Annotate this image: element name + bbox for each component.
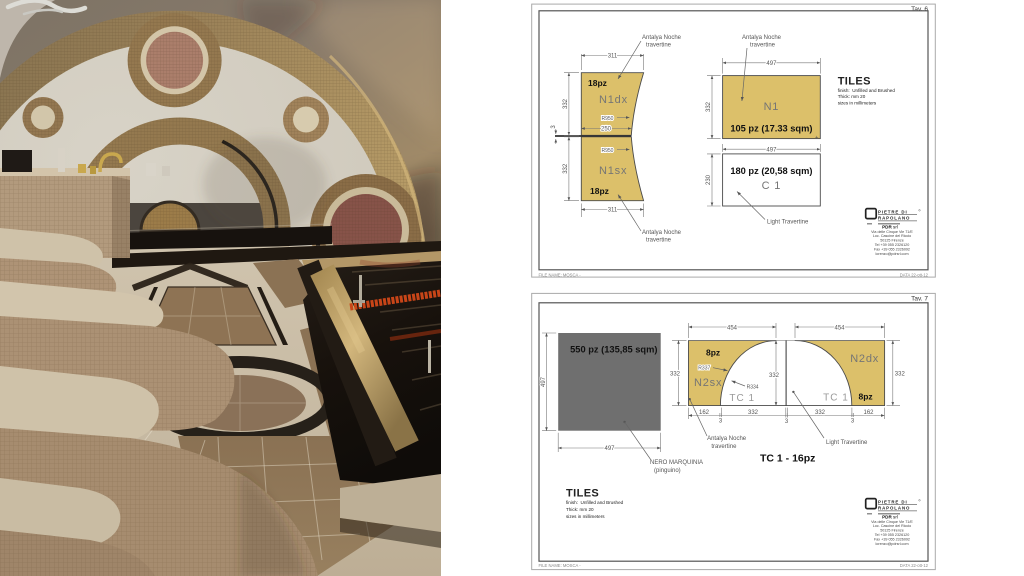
svg-text:N1: N1 (764, 101, 780, 113)
svg-text:travertine: travertine (750, 43, 776, 49)
svg-text:travertine: travertine (646, 238, 672, 244)
svg-text:finish: Unfilled and Brushed: finish: Unfilled and Brushed (566, 500, 624, 505)
svg-text:Via delle Cinque Vie 71/E: Via delle Cinque Vie 71/E (871, 230, 913, 234)
svg-text:travertine: travertine (711, 444, 737, 450)
svg-text:332: 332 (563, 98, 569, 109)
svg-text:N2sx: N2sx (694, 377, 722, 389)
svg-text:N1sx: N1sx (599, 165, 627, 177)
svg-text:332: 332 (563, 163, 569, 174)
svg-text:travertine: travertine (646, 43, 672, 49)
svg-text:TILES: TILES (838, 76, 871, 88)
svg-text:Antalya Noche: Antalya Noche (642, 35, 682, 41)
svg-text:R950: R950 (602, 148, 614, 154)
svg-text:FILE NAME: MOSCA -: FILE NAME: MOSCA - (539, 563, 582, 568)
svg-text:332: 332 (815, 410, 826, 416)
svg-text:18pz: 18pz (588, 78, 607, 88)
svg-text:Tav. 6: Tav. 6 (911, 6, 928, 13)
svg-text:Via delle Cinque Vie 71/E: Via delle Cinque Vie 71/E (871, 520, 913, 524)
svg-text:lorenzo@pdrsrl.com: lorenzo@pdrsrl.com (875, 252, 908, 256)
svg-text:8pz: 8pz (859, 392, 873, 402)
svg-text:162: 162 (699, 410, 710, 416)
svg-text:497: 497 (604, 446, 615, 452)
svg-text:332: 332 (670, 372, 681, 378)
svg-text:Thick: mm 20: Thick: mm 20 (838, 94, 866, 99)
svg-text:RAPOLANO: RAPOLANO (878, 216, 910, 221)
svg-text:50125 Firenze: 50125 Firenze (880, 529, 904, 533)
svg-text:TC 1 - 16pz: TC 1 - 16pz (760, 453, 815, 465)
svg-text:PDR srl: PDR srl (882, 224, 898, 229)
svg-text:18pz: 18pz (590, 186, 609, 196)
svg-text:Fax +39 055 2326092: Fax +39 055 2326092 (874, 537, 910, 541)
svg-text:332: 332 (769, 373, 780, 379)
svg-text:DATA 22-ott-12: DATA 22-ott-12 (900, 273, 929, 278)
svg-text:Tav. 7: Tav. 7 (911, 296, 928, 303)
svg-text:8pz: 8pz (706, 348, 720, 358)
svg-text:Antalya Noche: Antalya Noche (707, 436, 747, 442)
svg-text:N2dx: N2dx (850, 353, 879, 365)
svg-text:R337: R337 (698, 366, 710, 372)
svg-text:230: 230 (706, 174, 712, 185)
svg-text:+: + (815, 136, 819, 142)
svg-text:Loc. Cascine del Riccio: Loc. Cascine del Riccio (873, 234, 911, 238)
svg-text:TC 1: TC 1 (823, 393, 849, 404)
svg-text:R950: R950 (602, 116, 614, 122)
svg-text:105 pz (17.33 sqm): 105 pz (17.33 sqm) (730, 124, 812, 134)
svg-text:C 1: C 1 (762, 180, 782, 192)
svg-text:311: 311 (608, 54, 618, 60)
svg-text:Fax +39 055 2326092: Fax +39 055 2326092 (874, 247, 910, 251)
svg-text:sizes in millimeters: sizes in millimeters (566, 514, 605, 519)
svg-text:Tel +39 055 2326120: Tel +39 055 2326120 (875, 533, 910, 537)
svg-text:497: 497 (541, 376, 547, 387)
svg-text:50125 Firenze: 50125 Firenze (880, 239, 904, 243)
svg-text:lorenzo@pdrsrl.com: lorenzo@pdrsrl.com (875, 542, 908, 546)
svg-text:550 pz (135,85 sqm): 550 pz (135,85 sqm) (570, 345, 657, 355)
svg-text:Antalya Noche: Antalya Noche (742, 35, 782, 41)
svg-text:180 pz (20,58 sqm): 180 pz (20,58 sqm) (730, 166, 812, 176)
svg-text:Light Travertine: Light Travertine (826, 440, 868, 446)
svg-text:PIETRE DI: PIETRE DI (878, 499, 908, 504)
svg-text:FILE NAME: MOSCA -: FILE NAME: MOSCA - (539, 273, 582, 278)
svg-text:332: 332 (895, 372, 906, 378)
svg-text:332: 332 (706, 101, 712, 112)
svg-text:Light Travertine: Light Travertine (767, 220, 809, 226)
svg-text:497: 497 (766, 61, 777, 67)
svg-text:PDR srl: PDR srl (882, 514, 898, 519)
svg-text:R334: R334 (747, 384, 759, 390)
svg-text:RAPOLANO: RAPOLANO (878, 506, 910, 511)
svg-text:Tel +39 055 2326120: Tel +39 055 2326120 (875, 243, 910, 247)
svg-text:finish: Unfilled and Brushed: finish: Unfilled and Brushed (838, 88, 896, 93)
svg-text:N1dx: N1dx (599, 94, 628, 106)
svg-text:(pinguino): (pinguino) (654, 468, 681, 474)
svg-text:250: 250 (601, 127, 612, 133)
svg-text:454: 454 (727, 325, 738, 331)
svg-text:332: 332 (748, 410, 759, 416)
svg-text:DATA 22-ott-12: DATA 22-ott-12 (900, 563, 929, 568)
svg-text:162: 162 (863, 410, 874, 416)
svg-text:TILES: TILES (566, 488, 599, 500)
svg-text:sizes in millimeters: sizes in millimeters (838, 100, 877, 105)
svg-text:PIETRE DI: PIETRE DI (878, 209, 908, 214)
svg-text:311: 311 (608, 208, 618, 214)
svg-text:Thick: mm 20: Thick: mm 20 (566, 507, 594, 512)
svg-text:497: 497 (766, 147, 777, 153)
svg-text:TC 1: TC 1 (729, 393, 755, 404)
svg-text:Loc. Cascine del Riccio: Loc. Cascine del Riccio (873, 524, 911, 528)
svg-text:NERO MARQUINIA: NERO MARQUINIA (650, 460, 703, 466)
svg-text:454: 454 (834, 325, 845, 331)
svg-text:Antalya Noche: Antalya Noche (642, 230, 682, 236)
